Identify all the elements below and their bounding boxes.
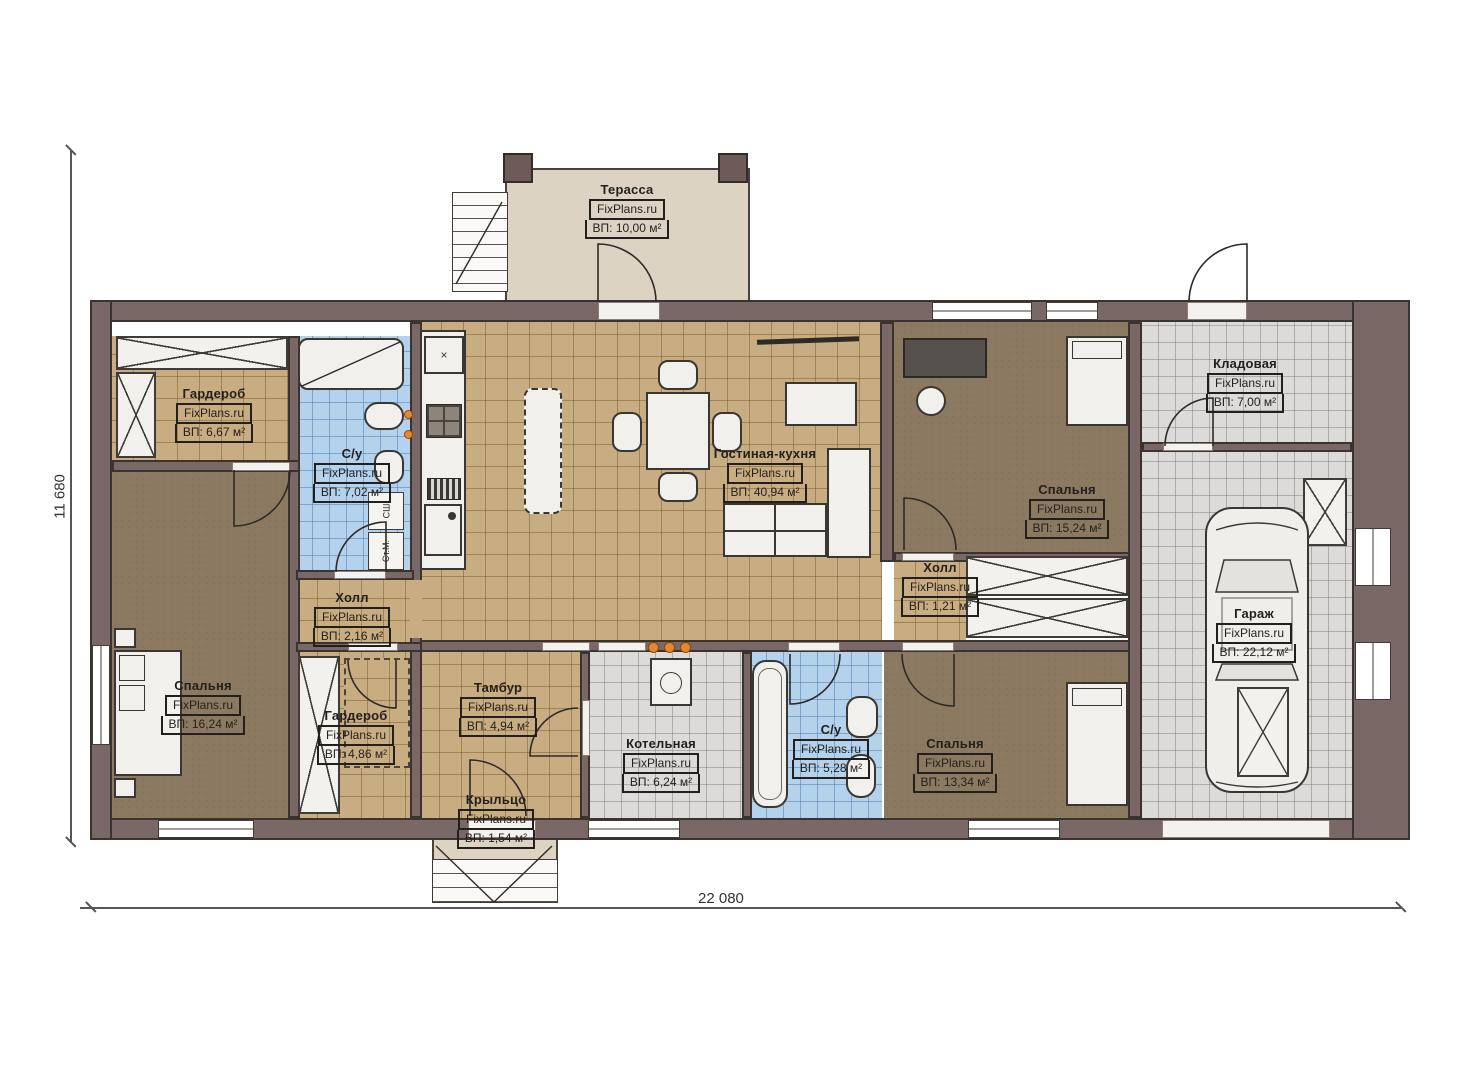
watermark: FixPlans.ru [314, 607, 390, 628]
room-label-hall2: Холл FixPlans.ru ВП: 1,21 м² [894, 560, 986, 617]
room-name: Спальня [926, 736, 984, 751]
bathtub-inner [758, 668, 782, 800]
console-table [785, 382, 857, 426]
room-name: Гардероб [324, 708, 387, 723]
room-label-porch: Крыльцо FixPlans.ru ВП: 1,54 м² [446, 792, 546, 849]
entry-door-arc [1189, 244, 1247, 302]
room-label-tambour: Тамбур FixPlans.ru ВП: 4,94 м² [448, 680, 548, 737]
tambour-boiler-opening [582, 700, 590, 756]
watermark: FixPlans.ru [727, 463, 803, 484]
room-label-bathroom1: С/у FixPlans.ru ВП: 7,02 м² [306, 446, 398, 503]
room-name: С/у [342, 446, 363, 461]
garage-gate [1162, 820, 1330, 838]
stool [916, 386, 946, 416]
faucet [448, 512, 456, 520]
stove [426, 404, 462, 438]
watermark: FixPlans.ru [318, 725, 394, 746]
porch-steps [432, 859, 558, 903]
closet-left [116, 372, 156, 458]
room-area: ВП: 1,21 м² [901, 598, 979, 617]
room-label-bedroom1: Спальня FixPlans.ru ВП: 16,24 м² [150, 678, 256, 735]
window-right-2 [1355, 642, 1391, 700]
storage-door-opening [1163, 443, 1213, 451]
room-area: ВП: 15,24 м² [1025, 520, 1110, 539]
hall-closet-bottom [966, 598, 1128, 638]
window-bottom-2 [588, 820, 680, 838]
window-top-1 [932, 302, 1032, 320]
room-name: Гардероб [182, 386, 245, 401]
floor-plan: СШ Ст.М. × [0, 0, 1473, 1080]
room-label-storage: Кладовая FixPlans.ru ВП: 7,00 м² [1192, 356, 1298, 413]
nightstand-1 [114, 628, 136, 648]
room-area: ВП: 4,86 м² [317, 746, 395, 765]
room-area: ВП: 7,02 м² [313, 484, 391, 503]
entry-door-opening [1187, 302, 1247, 320]
boiler-knob-2 [664, 642, 675, 653]
radiator-dot-1 [404, 410, 413, 419]
room-name: Тамбур [474, 680, 522, 695]
pillow-3 [1072, 688, 1122, 706]
room-label-wardrobe2: Гардероб FixPlans.ru ВП: 4,86 м² [308, 708, 404, 765]
watermark: FixPlans.ru [176, 403, 252, 424]
room-area: ВП: 1,54 м² [457, 830, 535, 849]
room-label-boiler: Котельная FixPlans.ru ВП: 6,24 м² [606, 736, 716, 793]
garage-shelf [1303, 478, 1347, 546]
pillow-1b [119, 685, 145, 711]
dim-width: 22 080 [690, 890, 752, 907]
room-name: Крыльцо [466, 792, 527, 807]
wall-kitchen-right [880, 322, 894, 562]
hall-closet-top [966, 556, 1128, 596]
room-area: ВП: 7,00 м² [1206, 394, 1284, 413]
room-name: Гараж [1234, 606, 1274, 621]
watermark: FixPlans.ru [314, 463, 390, 484]
burner [429, 407, 443, 420]
dim-line-vertical [70, 150, 72, 843]
room-area: ВП: 10,00 м² [585, 220, 670, 239]
watermark: FixPlans.ru [1029, 499, 1105, 520]
burner [445, 422, 459, 435]
window-bottom-3 [968, 820, 1060, 838]
watermark: FixPlans.ru [1216, 623, 1292, 644]
room-name: Кладовая [1213, 356, 1277, 371]
room-area: ВП: 4,94 м² [459, 718, 537, 737]
watermark: FixPlans.ru [623, 753, 699, 774]
room-label-garage: Гараж FixPlans.ru ВП: 22,12 м² [1204, 606, 1304, 663]
window-right-1 [1355, 528, 1391, 586]
room-name: Холл [923, 560, 956, 575]
shower [298, 338, 404, 390]
bathroom1-door-opening [334, 571, 386, 579]
pillow-2 [1072, 341, 1122, 359]
boiler-drum [660, 672, 682, 694]
wall-garage-left [1128, 322, 1142, 818]
wall-outer-left [90, 300, 112, 840]
room-area: ВП: 5,28 м² [792, 760, 870, 779]
window-left-1 [92, 645, 110, 745]
room-label-kitchen: Гостиная-кухня FixPlans.ru ВП: 40,94 м² [698, 446, 832, 503]
watermark: FixPlans.ru [458, 809, 534, 830]
kitchen-sink [424, 504, 462, 556]
radiator-dot-2 [404, 430, 413, 439]
watermark: FixPlans.ru [793, 739, 869, 760]
wall-boiler-right [742, 652, 752, 818]
window-top-2 [1046, 302, 1098, 320]
room-name: Спальня [1038, 482, 1096, 497]
toilet-1 [364, 402, 404, 430]
room-label-terrace: Терасса FixPlans.ru ВП: 10,00 м² [578, 182, 676, 239]
room-name: Гостиная-кухня [714, 446, 816, 461]
room-name: Котельная [626, 736, 696, 751]
boiler-knob-1 [648, 642, 659, 653]
room-label-bathroom2: С/у FixPlans.ru ВП: 5,28 м² [788, 722, 874, 779]
watermark: FixPlans.ru [165, 695, 241, 716]
room-name: Холл [335, 590, 368, 605]
nightstand-2 [114, 778, 136, 798]
dim-line-horizontal [80, 907, 1402, 909]
watermark: FixPlans.ru [902, 577, 978, 598]
room-label-bedroom3: Спальня FixPlans.ru ВП: 13,34 м² [902, 736, 1008, 793]
room-area: ВП: 6,67 м² [175, 424, 253, 443]
sofa-divider [774, 503, 776, 557]
chair-left [612, 412, 642, 452]
terrace-pillar-right [718, 153, 748, 183]
dish-rack [427, 478, 461, 500]
watermark: FixPlans.ru [460, 697, 536, 718]
room-name: С/у [821, 722, 842, 737]
room-name: Спальня [174, 678, 232, 693]
window-bottom-1 [158, 820, 254, 838]
burner [445, 407, 459, 420]
watermark: FixPlans.ru [1207, 373, 1283, 394]
watermark: FixPlans.ru [917, 753, 993, 774]
boiler-knob-3 [680, 642, 691, 653]
washer-label: Ст.М. [381, 540, 391, 562]
dryer-label: СШ [381, 504, 391, 519]
room-area: ВП: 6,24 м² [622, 774, 700, 793]
wall-kitchen-bottom [420, 640, 1132, 652]
closet-top [116, 336, 288, 370]
bedroom1-door-opening [232, 462, 290, 471]
chair-top [658, 360, 698, 390]
room-label-bedroom2: Спальня FixPlans.ru ВП: 15,24 м² [1014, 482, 1120, 539]
dim-height: 11 680 [52, 442, 69, 552]
bathroom2-door-opening [788, 642, 840, 651]
room-area: ВП: 22,12 м² [1212, 644, 1297, 663]
room-label-wardrobe1: Гардероб FixPlans.ru ВП: 6,67 м² [164, 386, 264, 443]
room-name: Терасса [601, 182, 654, 197]
burner [429, 422, 443, 435]
room-label-hall1: Холл FixPlans.ru ВП: 2,16 м² [306, 590, 398, 647]
chair-bottom [658, 472, 698, 502]
washer-box: Ст.М. [368, 532, 404, 570]
room-area: ВП: 2,16 м² [313, 628, 391, 647]
room-area: ВП: 13,34 м² [913, 774, 998, 793]
bedroom3-door-opening [902, 642, 954, 651]
kitchen-island [524, 388, 562, 514]
dresser [903, 338, 987, 378]
terrace-pillar-left [503, 153, 533, 183]
sofa-chaise [827, 448, 871, 558]
tambour-door-opening [542, 642, 590, 651]
room-area: ВП: 16,24 м² [161, 716, 246, 735]
boiler-door-opening [598, 642, 646, 651]
fridge: × [424, 336, 464, 374]
room-area: ВП: 40,94 м² [723, 484, 808, 503]
hall1-kitchen-opening [410, 580, 422, 638]
terrace-door-opening [598, 302, 660, 320]
terrace-stairs [452, 192, 508, 292]
watermark: FixPlans.ru [589, 199, 665, 220]
pillow-1a [119, 655, 145, 681]
